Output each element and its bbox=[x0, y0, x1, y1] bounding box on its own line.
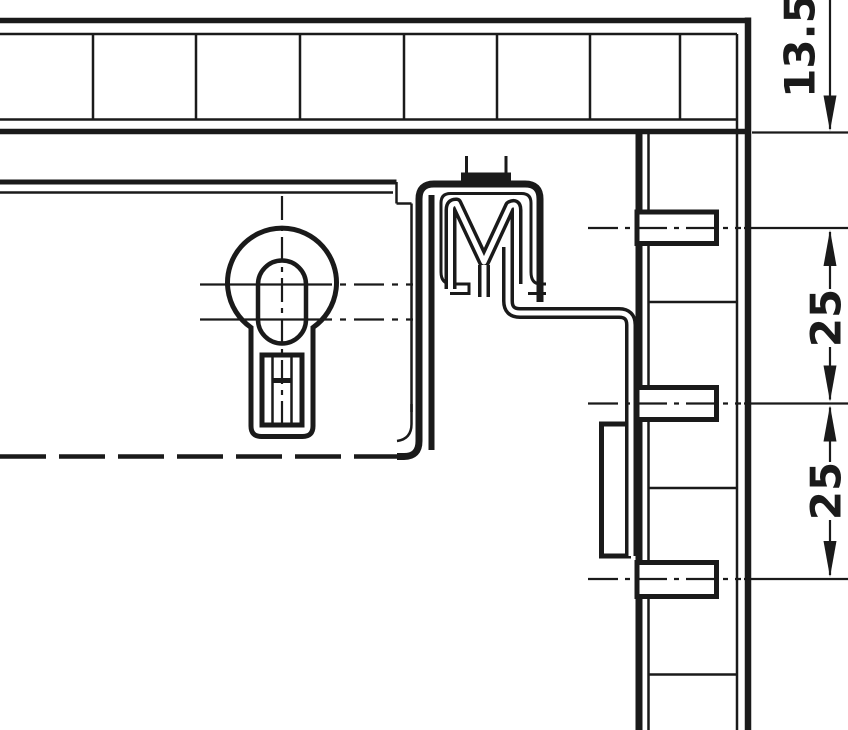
panel-row-dividers bbox=[649, 302, 738, 675]
dim-arrow-up bbox=[824, 230, 837, 266]
technical-drawing: 13.5 25 25 bbox=[0, 0, 848, 730]
dimension-label-25-lower: 25 bbox=[802, 462, 848, 520]
technical-drawing-canvas: 13.5 25 25 bbox=[0, 0, 848, 730]
rail-top-tab bbox=[461, 156, 511, 177]
dim-arrow-up bbox=[824, 406, 837, 442]
dimension-label-25-upper: 25 bbox=[802, 289, 848, 347]
dimension-label-13-5: 13.5 bbox=[776, 0, 825, 98]
dim-arrow-down bbox=[824, 366, 837, 402]
dimension-25-lower: 25 bbox=[802, 406, 848, 578]
panel-section-dividers bbox=[93, 34, 680, 120]
dimension-25-upper: 25 bbox=[802, 230, 848, 402]
dim-arrow-down bbox=[824, 541, 837, 577]
dimension-annotations: 13.5 25 25 bbox=[744, 0, 848, 579]
top-panel-section bbox=[0, 21, 751, 132]
wall-panel-section bbox=[639, 18, 748, 730]
dim-arrow-down bbox=[824, 96, 837, 132]
dimension-13-5: 13.5 bbox=[776, 0, 837, 131]
cabinet-hanger-bracket bbox=[397, 156, 631, 556]
